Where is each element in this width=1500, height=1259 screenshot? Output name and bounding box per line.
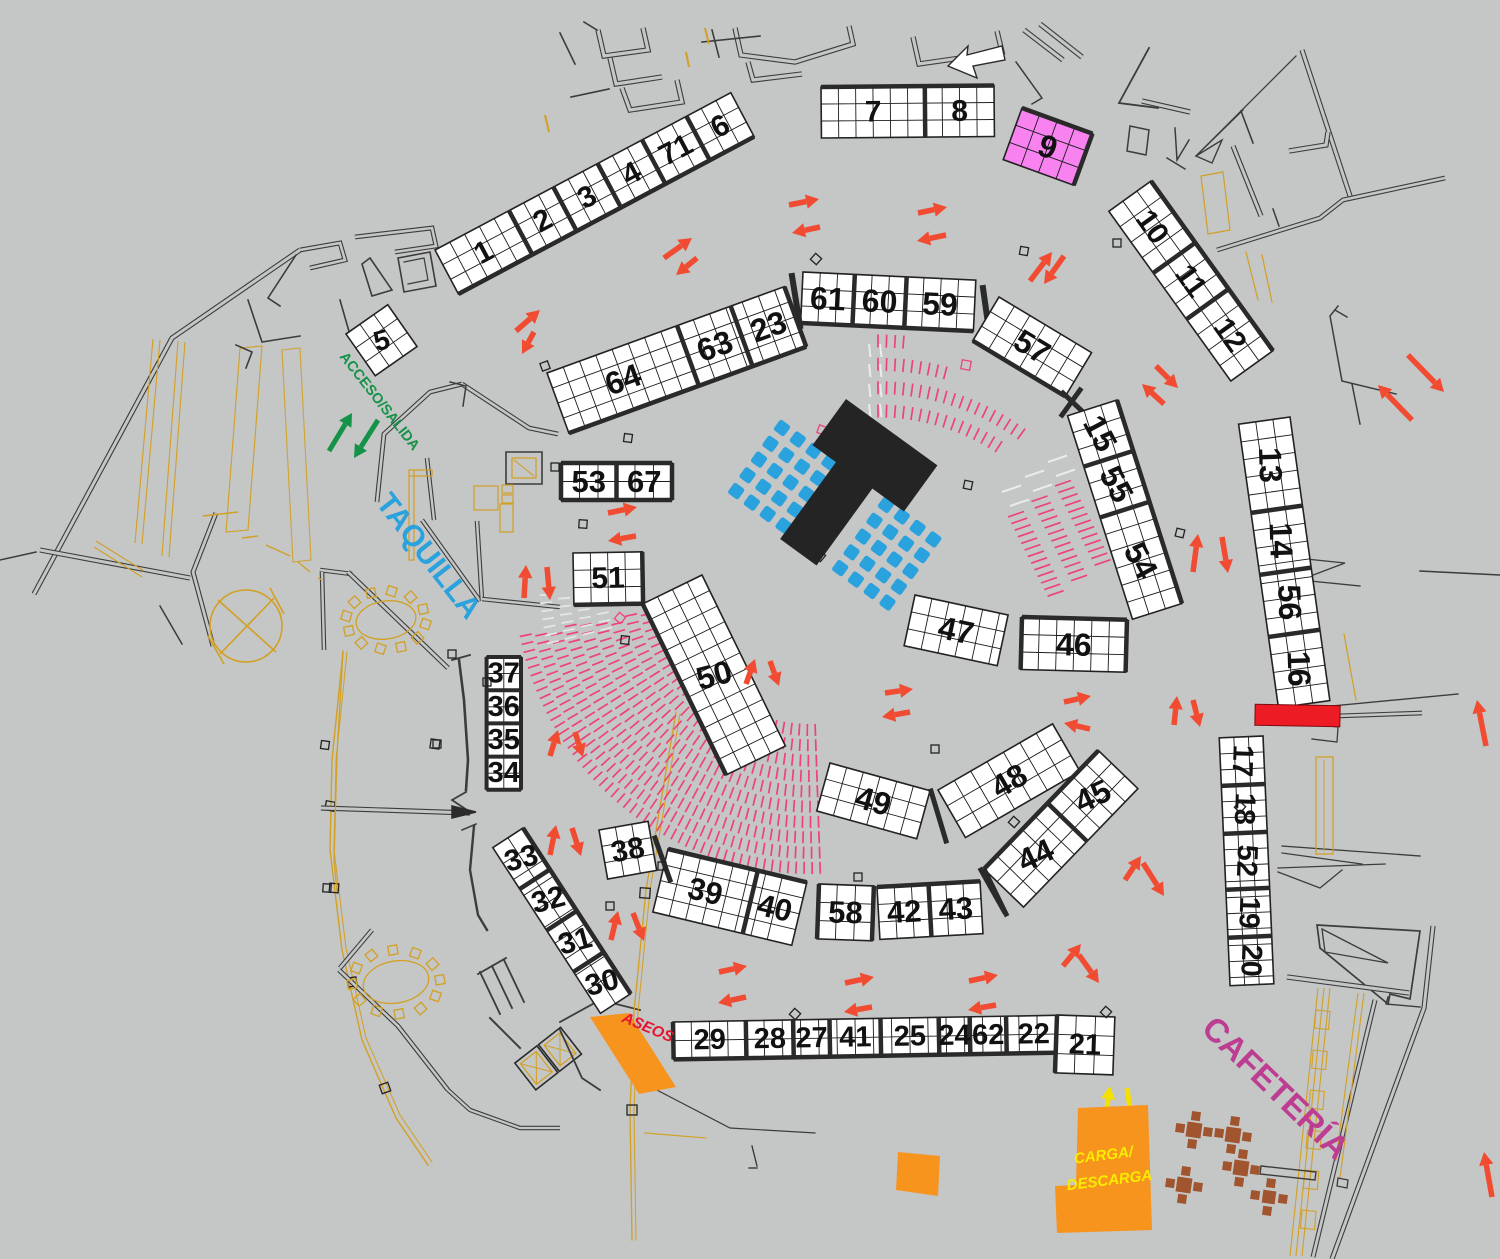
svg-text:43: 43 <box>938 890 974 927</box>
svg-text:14: 14 <box>1262 522 1299 559</box>
svg-text:24: 24 <box>938 1020 971 1053</box>
svg-text:34: 34 <box>488 757 520 789</box>
svg-text:27: 27 <box>795 1022 828 1055</box>
svg-text:47: 47 <box>935 609 977 652</box>
svg-text:59: 59 <box>921 285 958 323</box>
svg-text:52: 52 <box>1230 844 1263 877</box>
svg-text:53: 53 <box>572 464 606 499</box>
svg-text:8: 8 <box>951 95 968 128</box>
svg-text:13: 13 <box>1252 447 1289 484</box>
svg-text:29: 29 <box>693 1024 726 1057</box>
svg-text:16: 16 <box>1281 650 1318 687</box>
svg-text:38: 38 <box>609 831 648 869</box>
svg-text:21: 21 <box>1068 1028 1101 1061</box>
svg-text:46: 46 <box>1056 626 1093 663</box>
svg-text:25: 25 <box>893 1020 926 1053</box>
svg-text:61: 61 <box>809 280 846 318</box>
svg-text:56: 56 <box>1271 584 1308 621</box>
svg-text:19: 19 <box>1232 896 1265 929</box>
svg-text:67: 67 <box>627 464 661 499</box>
svg-text:60: 60 <box>861 282 898 320</box>
svg-text:17: 17 <box>1226 744 1259 777</box>
svg-text:58: 58 <box>828 894 864 930</box>
svg-text:36: 36 <box>488 691 520 723</box>
svg-text:51: 51 <box>591 562 625 596</box>
svg-text:41: 41 <box>839 1021 872 1054</box>
svg-text:62: 62 <box>972 1019 1005 1052</box>
svg-text:28: 28 <box>753 1023 786 1056</box>
svg-text:22: 22 <box>1017 1018 1050 1051</box>
svg-text:20: 20 <box>1234 944 1267 977</box>
svg-text:37: 37 <box>488 658 520 690</box>
svg-text:42: 42 <box>886 893 922 930</box>
svg-text:35: 35 <box>488 724 520 756</box>
svg-text:7: 7 <box>865 95 882 128</box>
